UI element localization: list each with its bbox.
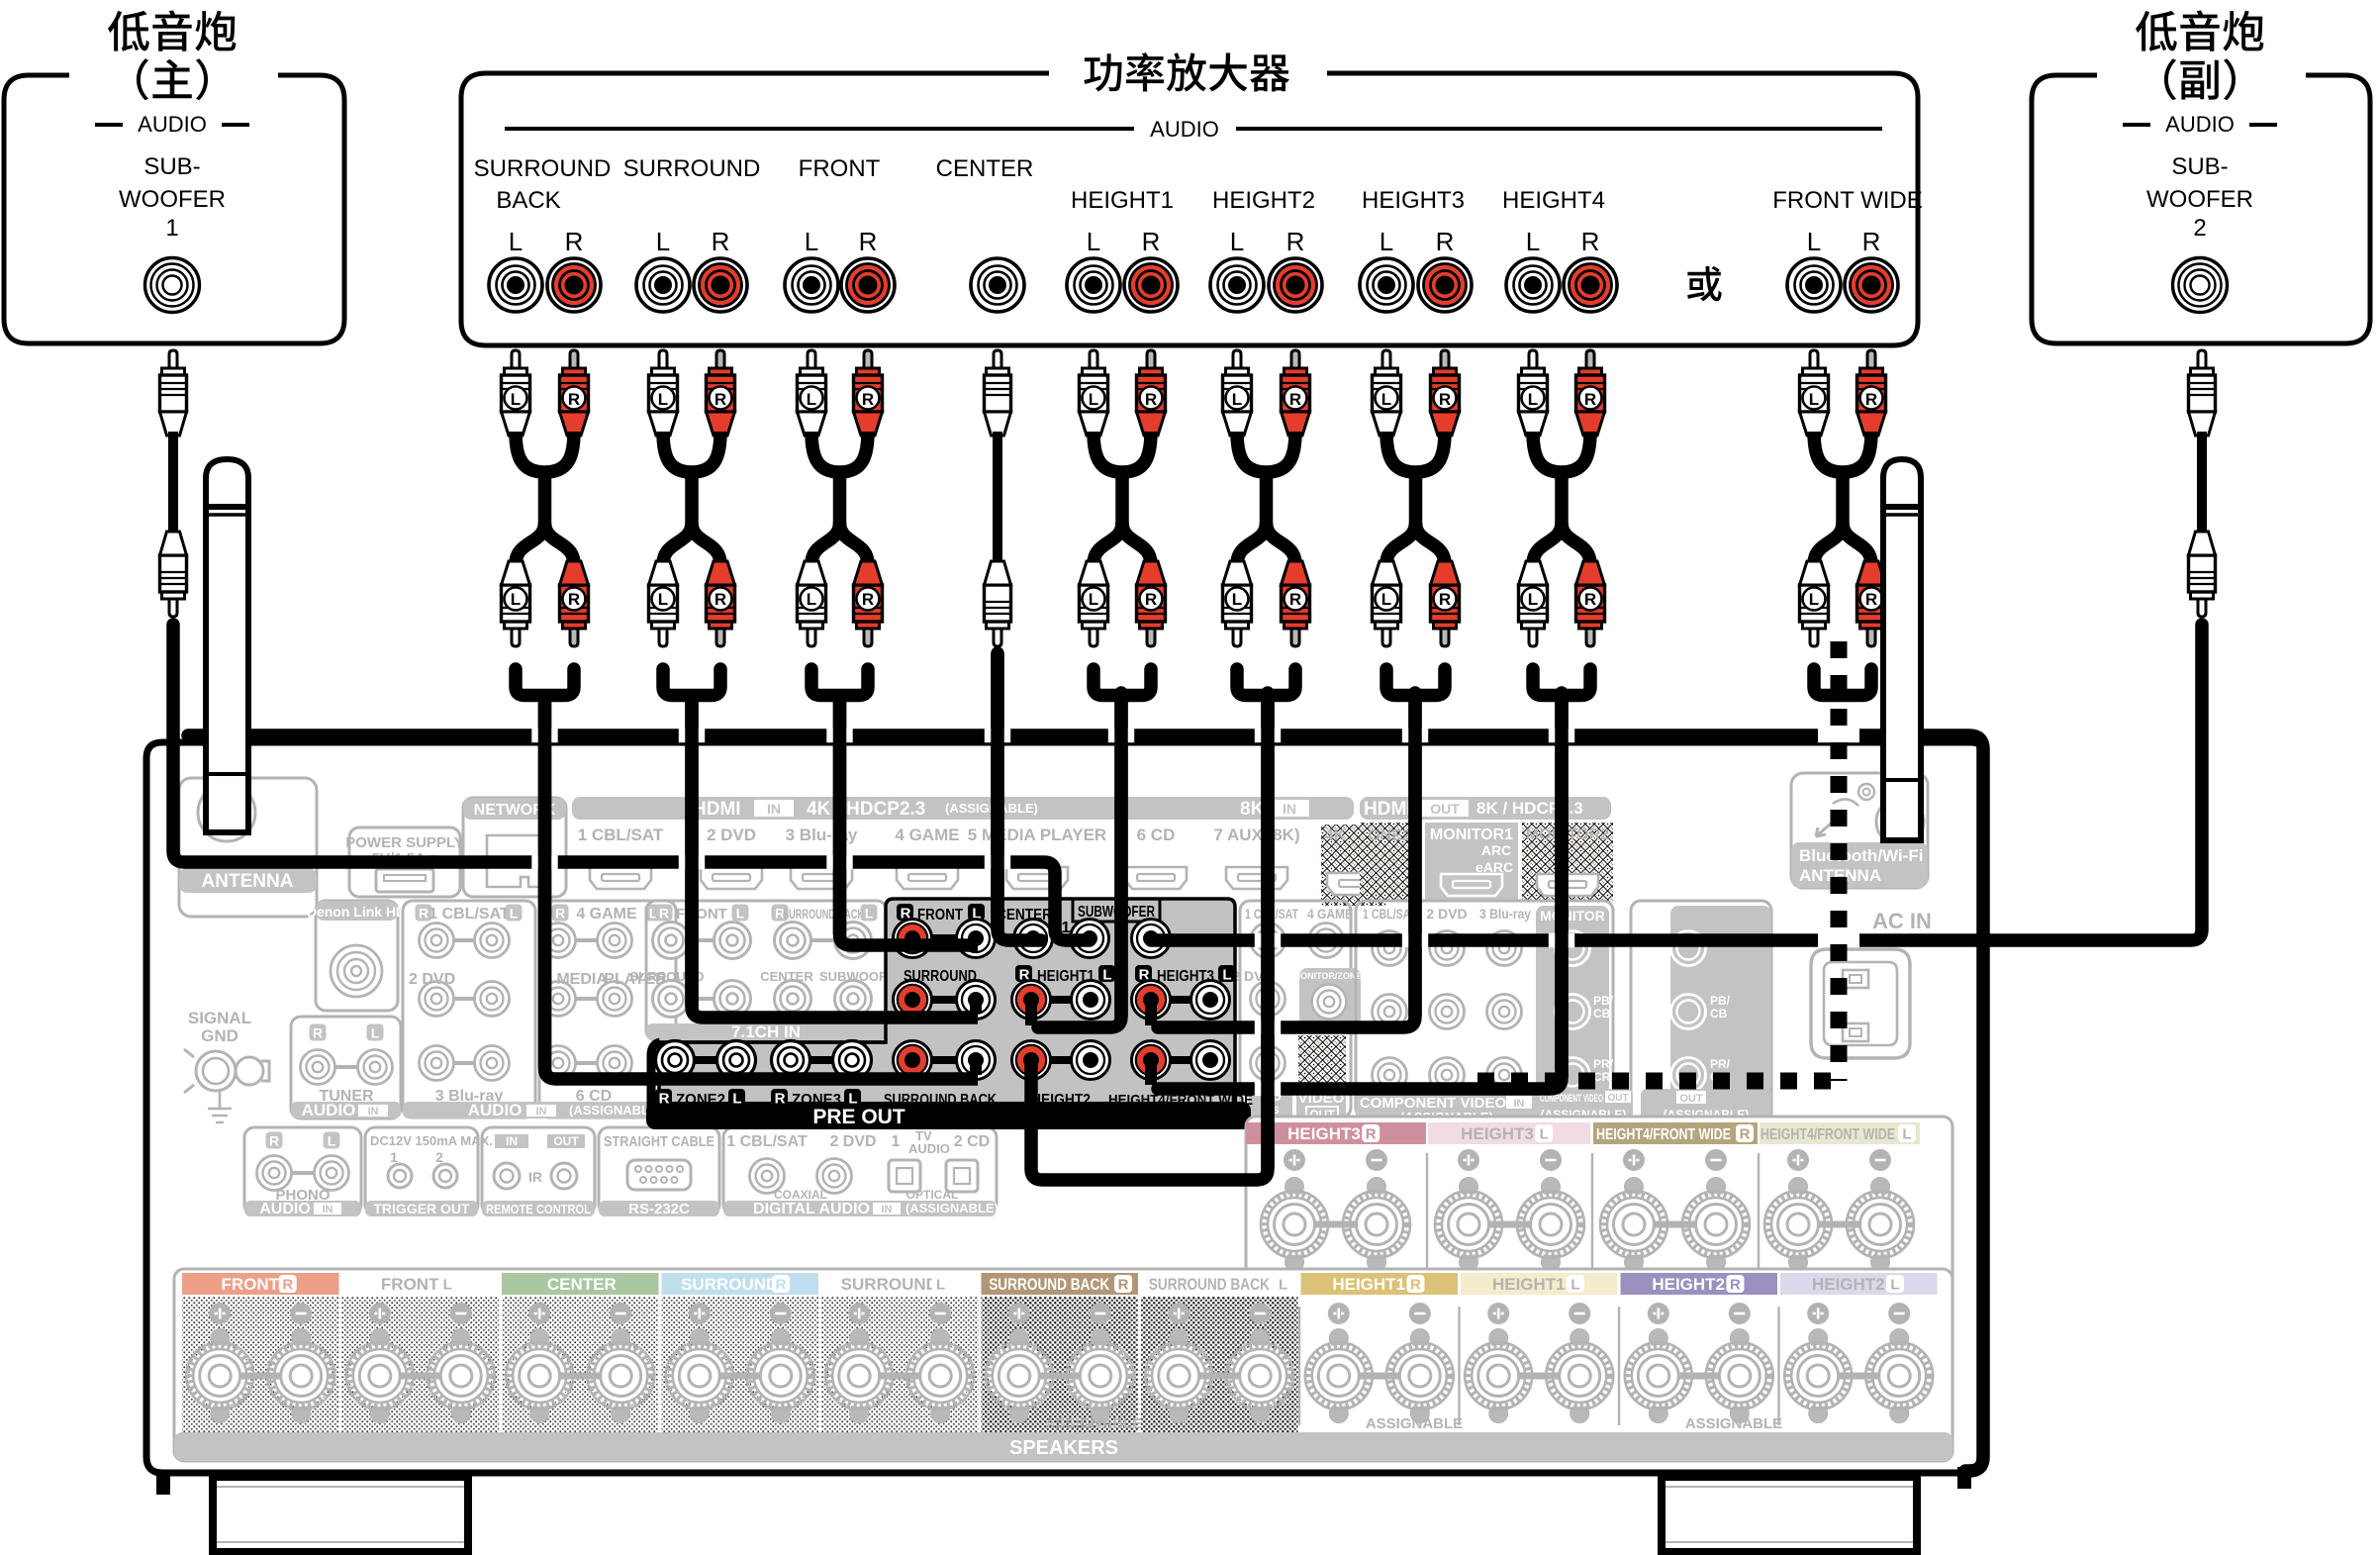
svg-text:R: R	[1865, 390, 1877, 409]
svg-text:IN: IN	[506, 1134, 518, 1148]
svg-text:R: R	[1289, 390, 1301, 409]
svg-text:R: R	[714, 390, 726, 409]
svg-text:7.1CH IN: 7.1CH IN	[731, 1022, 801, 1041]
svg-text:HEIGHT3: HEIGHT3	[1287, 1124, 1361, 1143]
svg-text:L: L	[328, 1133, 336, 1149]
svg-text:OUT: OUT	[1607, 1093, 1628, 1104]
svg-text:AUDIO: AUDIO	[138, 112, 207, 137]
svg-text:IN: IN	[368, 1106, 379, 1118]
svg-text:R: R	[1730, 1277, 1741, 1294]
svg-text:R: R	[1145, 390, 1157, 409]
svg-text:R: R	[282, 1277, 293, 1294]
svg-text:R: R	[1581, 227, 1600, 256]
svg-text:R: R	[555, 906, 565, 922]
svg-text:eARC: eARC	[1476, 859, 1513, 875]
svg-text:HEIGHT2: HEIGHT2	[1031, 1092, 1091, 1109]
svg-text:PB/: PB/	[1710, 994, 1731, 1008]
svg-text:PR/: PR/	[1593, 1057, 1614, 1071]
svg-text:CENTER: CENTER	[547, 1275, 617, 1294]
svg-text:1 CBL/SAT: 1 CBL/SAT	[578, 826, 664, 844]
svg-text:2 CD: 2 CD	[954, 1133, 990, 1150]
svg-text:SPEAKERS: SPEAKERS	[1009, 1437, 1118, 1459]
svg-text:L: L	[1222, 967, 1231, 984]
svg-text:2 DVD: 2 DVD	[829, 1133, 876, 1150]
svg-text:L: L	[1102, 967, 1111, 984]
svg-text:L: L	[1571, 1277, 1579, 1294]
svg-text:L: L	[1809, 590, 1819, 609]
svg-text:OUT: OUT	[553, 1134, 579, 1148]
svg-text:L: L	[1381, 590, 1391, 609]
svg-text:R: R	[1366, 1126, 1377, 1143]
svg-text:R: R	[568, 390, 580, 409]
svg-text:R: R	[568, 590, 580, 609]
svg-text:COAXIAL: COAXIAL	[774, 1188, 827, 1202]
svg-text:DC12V 150mA MAX.: DC12V 150mA MAX.	[370, 1133, 493, 1148]
svg-text:PB/: PB/	[1593, 994, 1614, 1008]
svg-text:ASSIGNABLE: ASSIGNABLE	[1685, 1415, 1782, 1432]
svg-text:1: 1	[390, 1149, 398, 1165]
svg-text:R: R	[776, 1277, 787, 1294]
svg-text:HEIGHT4/FRONT WIDE: HEIGHT4/FRONT WIDE	[1761, 1126, 1895, 1143]
svg-text:ARC: ARC	[1481, 842, 1511, 858]
svg-text:1 CBL/SAT: 1 CBL/SAT	[1363, 906, 1416, 922]
svg-text:SURROUND BACK: SURROUND BACK	[884, 1092, 997, 1109]
svg-text:L: L	[511, 390, 521, 409]
svg-text:2 DVD: 2 DVD	[707, 826, 756, 844]
svg-text:2 DVD: 2 DVD	[1426, 906, 1467, 922]
svg-text:IR: IR	[528, 1169, 542, 1185]
svg-text:SURROUND BACK: SURROUND BACK	[989, 1275, 1110, 1294]
svg-text:R: R	[1584, 390, 1596, 409]
svg-text:8K: 8K	[1240, 799, 1265, 820]
svg-text:4K / HDCP2.3: 4K / HDCP2.3	[807, 799, 925, 820]
svg-text:1 CBL/SAT: 1 CBL/SAT	[726, 1133, 808, 1150]
svg-text:4 GAME: 4 GAME	[576, 906, 637, 923]
svg-text:L: L	[1230, 227, 1244, 256]
svg-text:L: L	[1807, 227, 1821, 256]
svg-text:L: L	[1089, 390, 1098, 409]
svg-text:4 GAME: 4 GAME	[1307, 906, 1353, 922]
svg-text:R: R	[1289, 590, 1301, 609]
svg-text:POWER SUPPLY: POWER SUPPLY	[345, 834, 463, 851]
svg-text:HEIGHT2: HEIGHT2	[1812, 1275, 1885, 1294]
svg-text:5 MEDIA: 5 MEDIA	[543, 971, 608, 988]
svg-text:5 MEDIA PLAYER: 5 MEDIA PLAYER	[968, 826, 1106, 844]
svg-text:AUDIO: AUDIO	[259, 1201, 311, 1217]
svg-text:AUDIO: AUDIO	[468, 1101, 523, 1119]
svg-text:HEIGHT3: HEIGHT3	[1461, 1124, 1534, 1143]
svg-text:IN: IN	[882, 1204, 893, 1215]
svg-text:2: 2	[2193, 215, 2206, 242]
svg-text:L: L	[848, 1091, 857, 1108]
svg-text:IN: IN	[767, 801, 781, 817]
svg-text:R: R	[1436, 227, 1455, 256]
svg-text:Denon Link HD: Denon Link HD	[307, 904, 406, 920]
svg-text:R: R	[1410, 1277, 1421, 1294]
svg-text:HDMI: HDMI	[693, 799, 741, 820]
svg-text:WOOFER: WOOFER	[2146, 186, 2253, 213]
svg-text:HEIGHT2: HEIGHT2	[1212, 187, 1315, 214]
svg-text:R: R	[659, 1091, 670, 1108]
svg-text:R: R	[565, 227, 584, 256]
svg-text:HEIGHT4/FRONT WIDE: HEIGHT4/FRONT WIDE	[1596, 1126, 1731, 1143]
svg-text:CB: CB	[1710, 1007, 1728, 1020]
svg-text:HEIGHT1: HEIGHT1	[1332, 1275, 1405, 1294]
svg-text:CENTER: CENTER	[936, 155, 1034, 182]
svg-text:AUDIO: AUDIO	[302, 1101, 356, 1119]
svg-text:R: R	[714, 590, 726, 609]
svg-text:R: R	[775, 1091, 786, 1108]
svg-text:L: L	[1902, 1126, 1911, 1143]
svg-text:SURROUND: SURROUND	[474, 155, 612, 182]
svg-text:3 Blu-ray: 3 Blu-ray	[786, 826, 858, 844]
svg-text:MONITOR1: MONITOR1	[1430, 826, 1513, 843]
svg-text:L: L	[1279, 1277, 1287, 1294]
svg-text:FRONT: FRONT	[222, 1275, 280, 1294]
svg-text:L: L	[1232, 590, 1242, 609]
svg-text:R: R	[1286, 227, 1305, 256]
svg-text:L: L	[807, 590, 816, 609]
svg-text:IN: IN	[536, 1106, 547, 1118]
svg-text:1: 1	[165, 215, 178, 242]
svg-text:R: R	[712, 227, 730, 256]
svg-text:L: L	[510, 906, 519, 922]
svg-text:FRONT: FRONT	[381, 1275, 439, 1294]
svg-text:R: R	[419, 906, 428, 922]
svg-text:L: L	[658, 590, 668, 609]
svg-text:DIGITAL AUDIO: DIGITAL AUDIO	[753, 1201, 870, 1217]
svg-text:R: R	[313, 1025, 323, 1041]
svg-text:R: R	[1862, 227, 1881, 256]
svg-text:L: L	[732, 1091, 741, 1108]
svg-text:GND: GND	[201, 1026, 238, 1045]
svg-text:2 DVD: 2 DVD	[409, 971, 455, 988]
svg-text:HEIGHT3: HEIGHT3	[1362, 187, 1465, 214]
svg-text:R: R	[659, 906, 669, 922]
svg-text:OUT: OUT	[1679, 1093, 1703, 1105]
svg-text:R: R	[1439, 390, 1451, 409]
svg-text:L: L	[1540, 1126, 1549, 1143]
svg-text:SUB-: SUB-	[143, 153, 200, 180]
svg-text:OPTICAL: OPTICAL	[906, 1188, 959, 1202]
svg-text:L: L	[443, 1277, 452, 1294]
svg-text:HEIGHT1: HEIGHT1	[1492, 1275, 1566, 1294]
svg-text:R: R	[1439, 590, 1451, 609]
svg-text:R: R	[862, 390, 874, 409]
svg-text:6 CD: 6 CD	[1137, 826, 1176, 844]
svg-text:ASSIGNABLE: ASSIGNABLE	[1045, 1415, 1142, 1432]
svg-text:AUDIO: AUDIO	[2165, 112, 2235, 137]
svg-text:L: L	[1087, 227, 1100, 256]
svg-text:FRONT: FRONT	[917, 907, 963, 923]
svg-text:HEIGHT2: HEIGHT2	[1652, 1275, 1725, 1294]
svg-text:FRONT WIDE: FRONT WIDE	[1772, 187, 1923, 214]
svg-text:BACK: BACK	[496, 187, 560, 214]
svg-text:L: L	[1528, 590, 1538, 609]
svg-text:L: L	[371, 1025, 380, 1041]
svg-text:R: R	[1142, 227, 1161, 256]
svg-text:AUDIO: AUDIO	[908, 1141, 950, 1156]
svg-text:L: L	[1232, 390, 1242, 409]
svg-text:3 Blu-ray: 3 Blu-ray	[1479, 906, 1531, 922]
svg-text:ONE2: ONE2	[1368, 827, 1411, 844]
svg-text:SURROUND: SURROUND	[623, 155, 761, 182]
svg-text:IN: IN	[1514, 1098, 1525, 1110]
svg-text:4 GAME: 4 GAME	[895, 826, 959, 844]
svg-text:R: R	[1740, 1126, 1751, 1143]
svg-text:1: 1	[892, 1133, 901, 1150]
svg-text:AUDIO: AUDIO	[1150, 117, 1219, 142]
svg-text:L: L	[1526, 227, 1540, 256]
svg-text:PRE OUT: PRE OUT	[812, 1106, 905, 1128]
svg-text:R: R	[859, 227, 878, 256]
svg-text:HEIGHT4: HEIGHT4	[1502, 187, 1605, 214]
svg-text:R: R	[1145, 590, 1157, 609]
svg-text:SURROUND BACK: SURROUND BACK	[783, 906, 864, 922]
svg-text:7 AUX (8K): 7 AUX (8K)	[1213, 826, 1299, 844]
svg-text:L: L	[936, 1277, 945, 1294]
svg-text:FRONT: FRONT	[799, 155, 881, 182]
svg-text:L: L	[736, 906, 745, 922]
svg-text:ZONE3: ZONE3	[792, 1092, 841, 1109]
svg-text:CB: CB	[1593, 1007, 1611, 1020]
svg-text:L: L	[1809, 390, 1819, 409]
svg-text:L: L	[1890, 1277, 1899, 1294]
svg-text:SIGNAL: SIGNAL	[188, 1009, 251, 1027]
svg-text:AC IN: AC IN	[1872, 909, 1932, 933]
svg-text:(ASSIGNABLE): (ASSIGNABLE)	[905, 1201, 999, 1215]
svg-text:HDMI: HDMI	[1364, 799, 1412, 820]
svg-text:R: R	[269, 1133, 279, 1149]
svg-text:L: L	[807, 390, 816, 409]
svg-text:L: L	[656, 227, 670, 256]
svg-text:2: 2	[435, 1149, 443, 1165]
svg-text:STRAIGHT CABLE: STRAIGHT CABLE	[604, 1133, 714, 1150]
svg-text:REMOTE CONTROL: REMOTE CONTROL	[486, 1202, 591, 1216]
svg-text:R: R	[1584, 590, 1596, 609]
svg-text:SURROUND BACK: SURROUND BACK	[1149, 1275, 1271, 1294]
svg-text:WOOFER: WOOFER	[119, 186, 226, 213]
svg-text:L: L	[658, 390, 668, 409]
svg-text:OUT: OUT	[1430, 801, 1460, 817]
svg-text:SUB-: SUB-	[2171, 153, 2228, 180]
svg-text:IN: IN	[323, 1204, 333, 1215]
svg-text:TRIGGER OUT: TRIGGER OUT	[373, 1201, 470, 1216]
svg-text:CR: CR	[1593, 1070, 1611, 1084]
svg-text:HEIGHT1: HEIGHT1	[1071, 187, 1174, 214]
svg-text:L: L	[1089, 590, 1098, 609]
svg-text:4K: 4K	[1324, 826, 1346, 844]
svg-text:ZONE2: ZONE2	[676, 1092, 725, 1109]
svg-text:IN: IN	[1283, 801, 1296, 817]
svg-text:R: R	[1865, 590, 1877, 609]
svg-text:L: L	[509, 227, 523, 256]
svg-text:L: L	[1381, 390, 1391, 409]
svg-text:L: L	[1528, 390, 1538, 409]
svg-text:RS-232C: RS-232C	[628, 1201, 690, 1217]
svg-text:Bluetooth/Wi-Fi: Bluetooth/Wi-Fi	[1799, 846, 1923, 865]
svg-text:R: R	[1118, 1277, 1129, 1294]
svg-text:FRONT: FRONT	[676, 906, 727, 923]
svg-text:L: L	[511, 590, 521, 609]
svg-text:ASSIGNABLE: ASSIGNABLE	[1366, 1415, 1463, 1432]
svg-text:PR/: PR/	[1710, 1057, 1731, 1071]
svg-text:1 CBL/SAT: 1 CBL/SAT	[428, 906, 510, 923]
svg-text:MONITOR: MONITOR	[1540, 908, 1605, 923]
svg-text:L: L	[865, 906, 874, 922]
svg-text:SURROUND: SURROUND	[681, 1275, 778, 1294]
svg-text:ANTENNA: ANTENNA	[202, 871, 294, 892]
svg-text:R: R	[862, 590, 874, 609]
svg-text:L: L	[805, 227, 818, 256]
svg-text:L: L	[1380, 227, 1393, 256]
svg-text:SURROUND: SURROUND	[841, 1275, 938, 1294]
